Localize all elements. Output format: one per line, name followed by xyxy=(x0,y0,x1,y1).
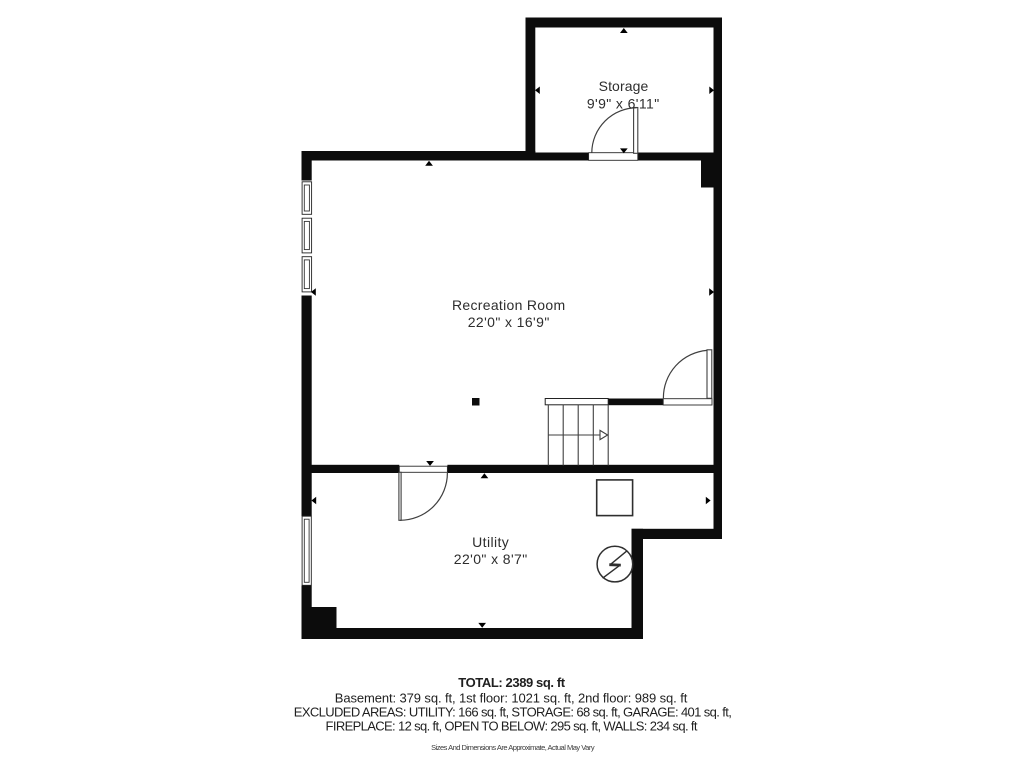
svg-text:EXCLUDED AREAS: UTILITY: 166 s: EXCLUDED AREAS: UTILITY: 166 sq. ft, STO… xyxy=(294,705,731,720)
svg-text:Recreation Room: Recreation Room xyxy=(452,297,565,313)
svg-text:Basement: 379 sq. ft, 1st floo: Basement: 379 sq. ft, 1st floor: 1021 sq… xyxy=(335,691,688,706)
svg-text:TOTAL: 2389 sq. ft: TOTAL: 2389 sq. ft xyxy=(458,675,566,690)
svg-text:FIREPLACE: 12 sq. ft, OPEN TO: FIREPLACE: 12 sq. ft, OPEN TO BELOW: 295… xyxy=(326,719,698,734)
svg-text:Utility: Utility xyxy=(472,534,509,550)
svg-text:Sizes And Dimensions Are Appro: Sizes And Dimensions Are Approximate, Ac… xyxy=(431,743,595,752)
svg-text:9'9" x 6'11": 9'9" x 6'11" xyxy=(587,96,660,112)
svg-text:22'0" x 8'7": 22'0" x 8'7" xyxy=(454,551,528,567)
svg-text:22'0" x 16'9": 22'0" x 16'9" xyxy=(468,314,550,330)
svg-text:Storage: Storage xyxy=(599,78,649,94)
